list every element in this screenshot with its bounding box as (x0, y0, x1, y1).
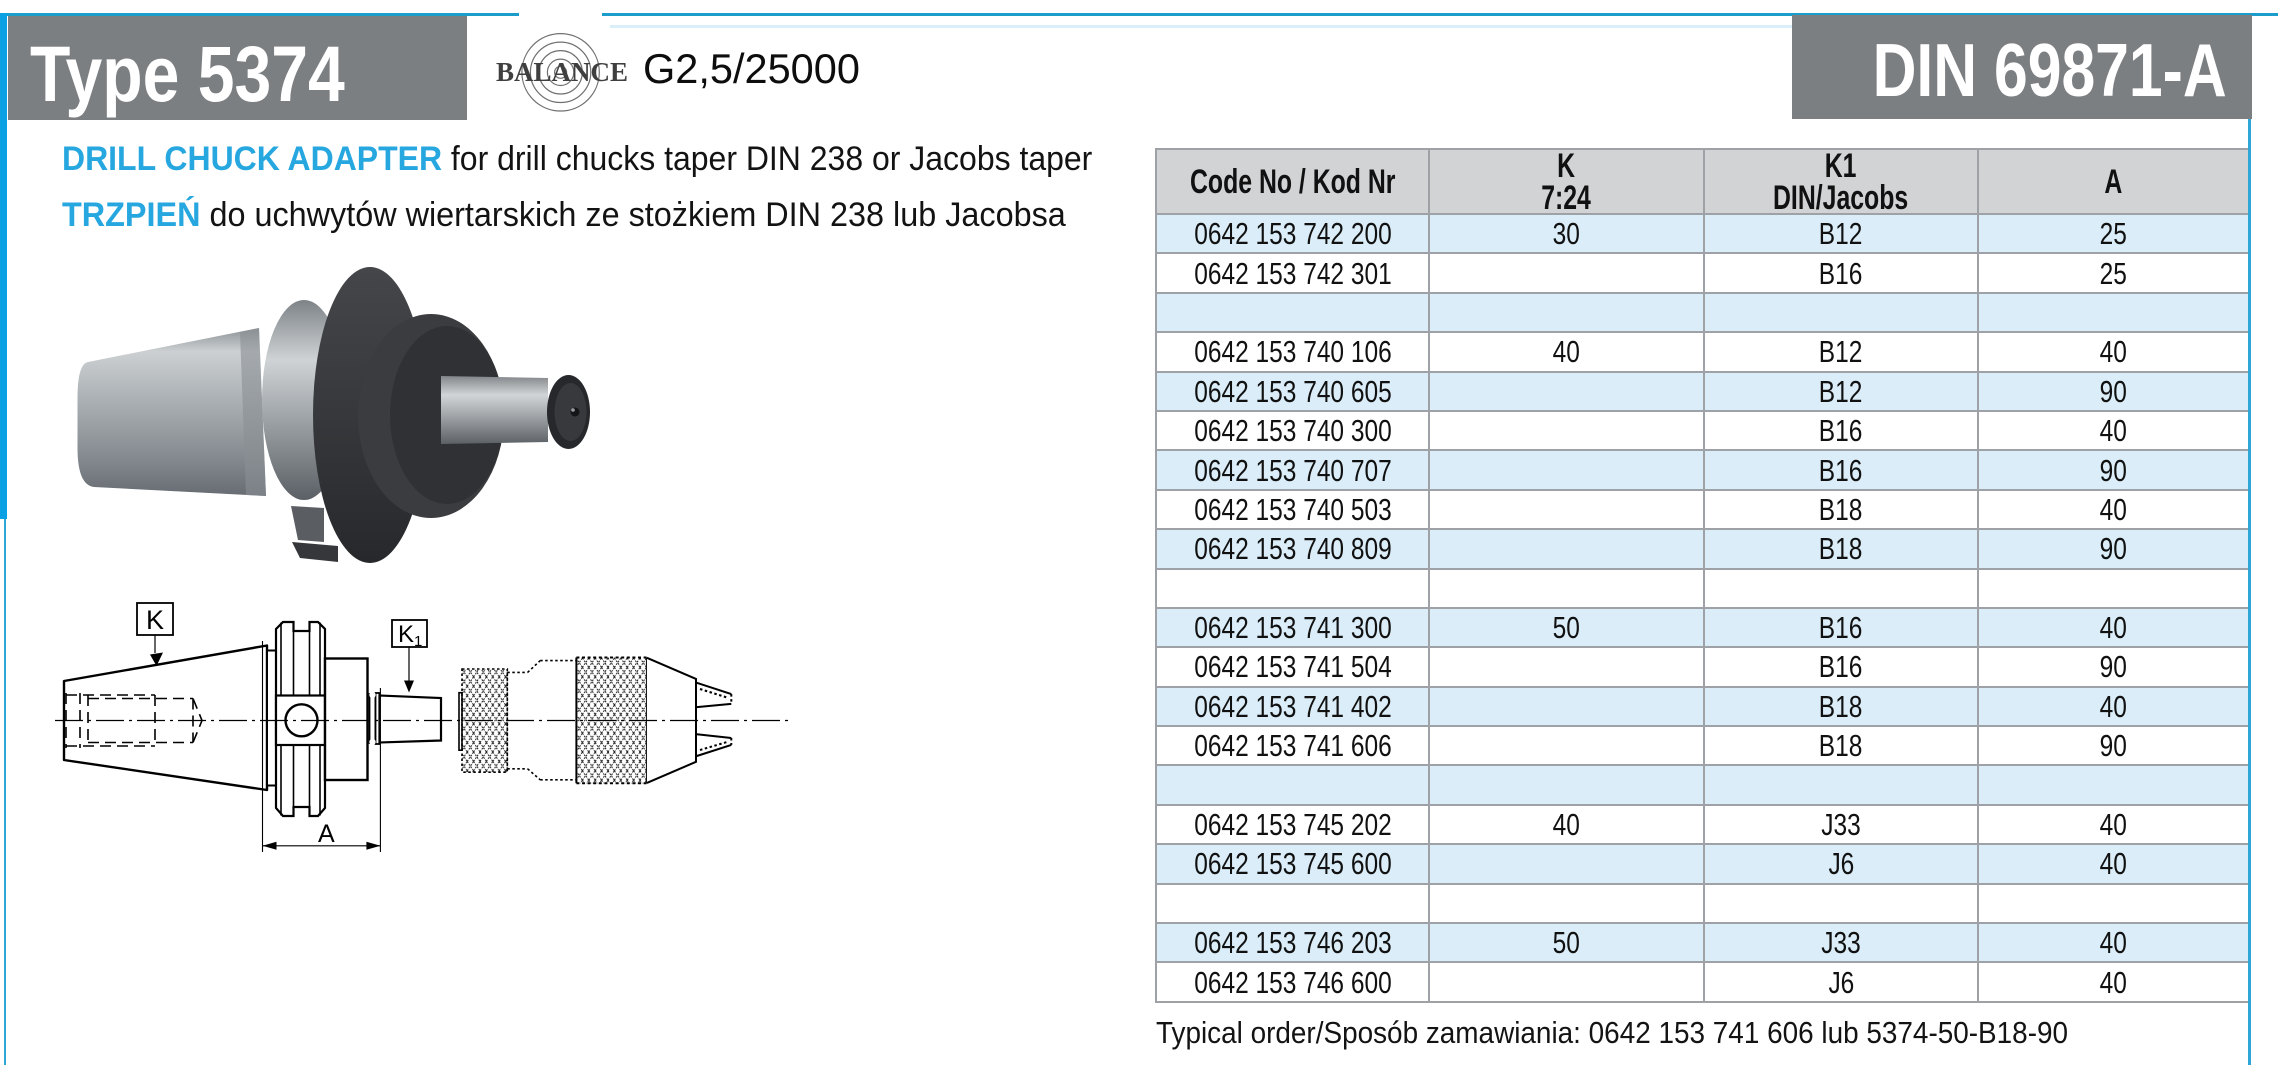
svg-text:1: 1 (414, 633, 422, 650)
svg-text:A: A (318, 820, 335, 848)
svg-text:K: K (398, 621, 414, 648)
svg-text:K: K (146, 605, 164, 635)
